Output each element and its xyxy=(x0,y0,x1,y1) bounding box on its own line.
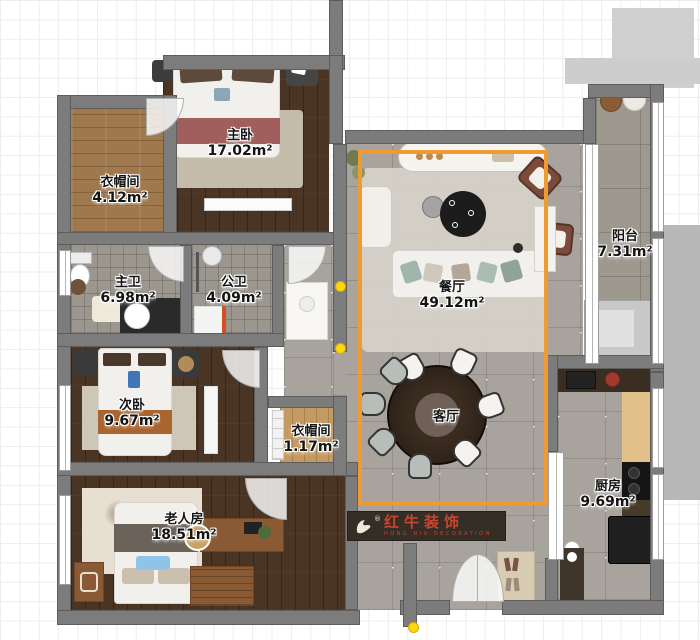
wall xyxy=(57,610,360,625)
room-label-closet-main[interactable]: 衣帽间 4.12m² xyxy=(92,175,147,207)
room-label-second-bedroom[interactable]: 次卧 9.67m² xyxy=(104,398,159,430)
fridge[interactable] xyxy=(608,516,654,564)
wall xyxy=(329,55,343,144)
wall xyxy=(57,333,284,347)
room-name: 阳台 xyxy=(597,229,652,244)
room-area: 18.51m² xyxy=(151,527,216,544)
pillow xyxy=(103,353,131,366)
wall xyxy=(403,543,417,627)
selection-rectangle[interactable] xyxy=(358,150,548,505)
room-area: 49.12m² xyxy=(419,295,484,312)
cabinet-decor xyxy=(567,552,577,562)
room-area: 9.69m² xyxy=(580,494,635,511)
shower-pole xyxy=(196,252,199,292)
kitchen-counter-right[interactable] xyxy=(622,392,652,462)
room-name: 厨房 xyxy=(580,479,635,494)
room-area: 4.12m² xyxy=(92,190,147,207)
window xyxy=(652,238,664,364)
room-name: 客厅 xyxy=(433,410,459,425)
wall xyxy=(556,355,664,369)
plant xyxy=(258,526,271,539)
wall xyxy=(502,600,664,615)
room-label-elder-room[interactable]: 老人房 18.51m² xyxy=(151,512,216,544)
room-name: 老人房 xyxy=(151,512,216,527)
kitchen-sink xyxy=(566,371,596,389)
room-label-master-bedroom[interactable]: 主卧 17.02m² xyxy=(207,128,272,160)
room-name: 衣帽间 xyxy=(92,175,147,190)
wall xyxy=(163,55,345,70)
wall xyxy=(583,98,596,144)
wall xyxy=(345,130,595,144)
wall xyxy=(333,144,347,352)
marker-dot[interactable] xyxy=(408,622,419,633)
brand-subtitle: HONG NIU DECORATION xyxy=(384,532,492,537)
hall-sink xyxy=(299,296,315,312)
utility-cabinet-door xyxy=(594,310,634,347)
wall xyxy=(57,462,358,476)
pillow xyxy=(122,568,154,584)
room-area: 17.02m² xyxy=(207,143,272,160)
window xyxy=(652,102,664,232)
window xyxy=(59,250,71,296)
shower-head xyxy=(202,246,222,266)
room-label-public-bath[interactable]: 公卫 4.09m² xyxy=(206,275,261,307)
dresser[interactable] xyxy=(190,566,254,606)
room-name: 餐厅 xyxy=(419,280,484,295)
tv-console[interactable] xyxy=(204,198,292,211)
room-area: 4.09m² xyxy=(206,290,261,307)
registered-mark: ® xyxy=(374,515,381,523)
stool xyxy=(70,279,86,295)
floor-plan-canvas: ® 红牛装饰 HONG NIU DECORATION 衣帽间 4.12m² 主卧… xyxy=(0,0,700,640)
window xyxy=(59,495,71,585)
desk-strip[interactable] xyxy=(204,386,218,454)
room-name: 次卧 xyxy=(104,398,159,413)
room-label-closet-small[interactable]: 衣帽间 1.17m² xyxy=(283,424,338,456)
room-name: 公卫 xyxy=(206,275,261,290)
wall xyxy=(329,0,343,58)
pillow xyxy=(138,353,166,366)
hanger-rack xyxy=(272,410,284,460)
brand-logo-bar: ® 红牛装饰 HONG NIU DECORATION xyxy=(347,511,506,541)
room-name: 主卫 xyxy=(100,275,155,290)
pillow xyxy=(214,88,230,101)
wall xyxy=(57,232,347,245)
window xyxy=(59,385,71,471)
room-label-living[interactable]: 客厅 xyxy=(433,410,459,425)
window xyxy=(652,474,664,560)
room-area: 7.31m² xyxy=(597,244,652,261)
marker-dot[interactable] xyxy=(335,343,346,354)
sliding-door-kitchen[interactable] xyxy=(548,452,564,560)
room-label-dining[interactable]: 餐厅 49.12m² xyxy=(419,280,484,312)
window xyxy=(652,388,664,468)
brand-name: 红牛装饰 xyxy=(384,515,492,530)
room-name: 衣帽间 xyxy=(283,424,338,439)
wall xyxy=(345,476,358,610)
pillow xyxy=(136,556,170,570)
cooking-pot xyxy=(605,372,620,387)
room-label-kitchen[interactable]: 厨房 9.69m² xyxy=(580,479,635,511)
room-label-balcony[interactable]: 阳台 7.31m² xyxy=(597,229,652,261)
bull-logo-icon xyxy=(354,516,374,536)
room-label-master-bath[interactable]: 主卫 6.98m² xyxy=(100,275,155,307)
room-name: 主卧 xyxy=(207,128,272,143)
room-area: 1.17m² xyxy=(283,439,338,456)
exterior-patch xyxy=(565,58,700,84)
pillow xyxy=(128,371,140,388)
wall xyxy=(272,245,284,347)
room-area: 9.67m² xyxy=(104,413,159,430)
nightstand-inner xyxy=(80,572,98,592)
room-area: 6.98m² xyxy=(100,290,155,307)
exterior-patch xyxy=(660,225,700,500)
marker-dot[interactable] xyxy=(335,281,346,292)
nightstand[interactable] xyxy=(74,350,98,376)
hall-opening xyxy=(333,352,347,396)
stove-burner xyxy=(628,467,640,479)
pillow xyxy=(158,568,190,584)
basket xyxy=(178,356,194,372)
